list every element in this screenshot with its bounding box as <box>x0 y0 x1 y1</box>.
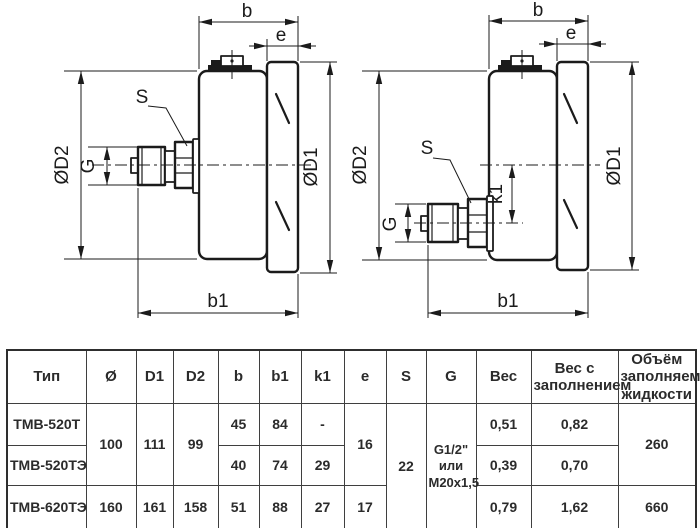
header-s: S <box>386 350 426 403</box>
cell-b: 45 <box>218 403 259 445</box>
header-volume: Объём заполняемой жидкости <box>618 350 696 403</box>
header-type: Тип <box>7 350 86 403</box>
cell-weight-filled: 0,70 <box>531 445 618 485</box>
spec-sheet: b e ØD2 G S ØD1 b1 <box>0 0 700 528</box>
dim-label-g-left: G <box>78 159 99 174</box>
cell-diameter: 160 <box>86 485 136 528</box>
cell-volume-merged: 260 <box>618 403 696 485</box>
cell-weight: 0,79 <box>476 485 531 528</box>
cell-e: 17 <box>344 485 386 528</box>
mounting-bracket-tab <box>211 60 221 66</box>
table-row: ТМВ-620ТЭ 160 161 158 51 88 27 17 0,79 1… <box>7 485 696 528</box>
dim-label-e-left: e <box>276 25 287 46</box>
leader-line <box>148 106 187 146</box>
header-d2: D2 <box>173 350 218 403</box>
cell-b: 51 <box>218 485 259 528</box>
cell-s-merged: 22 <box>386 403 426 528</box>
cell-g-merged: G1/2" или M20x1,5 <box>426 403 476 528</box>
header-weight-filled: Вес с заполнением <box>531 350 618 403</box>
technical-drawings: b e ØD2 G S ØD1 b1 <box>0 0 700 345</box>
table-header-row: Тип Ø D1 D2 b b1 k1 e S G Вес Вес с запо… <box>7 350 696 403</box>
cell-weight: 0,39 <box>476 445 531 485</box>
spec-table: Тип Ø D1 D2 b b1 k1 e S G Вес Вес с запо… <box>6 349 697 528</box>
cell-k1: 27 <box>301 485 344 528</box>
header-e: e <box>344 350 386 403</box>
cell-type: ТМВ-520ТЭ <box>7 445 86 485</box>
dim-label-b1-right: b1 <box>497 291 518 312</box>
dim-label-d2-left: ØD2 <box>52 145 73 184</box>
cell-b: 40 <box>218 445 259 485</box>
leader-line <box>433 158 471 203</box>
cell-d2: 158 <box>173 485 218 528</box>
cell-weight: 0,51 <box>476 403 531 445</box>
cell-b1: 74 <box>259 445 301 485</box>
cell-k1: 29 <box>301 445 344 485</box>
cell-type: ТМВ-520Т <box>7 403 86 445</box>
connection-washer <box>458 208 468 239</box>
gauge-case <box>489 71 557 260</box>
cell-b1: 84 <box>259 403 301 445</box>
dim-label-s-left: S <box>136 87 149 108</box>
dim-label-k1-right: k1 <box>486 184 507 204</box>
dim-label-s-right: S <box>421 138 434 159</box>
header-b: b <box>218 350 259 403</box>
cell-e-merged: 16 <box>344 403 386 485</box>
front-bezel <box>267 62 298 272</box>
cell-k1: - <box>301 403 344 445</box>
header-diameter: Ø <box>86 350 136 403</box>
cell-d1: 161 <box>136 485 173 528</box>
cell-weight-filled: 1,62 <box>531 485 618 528</box>
dim-label-b-left: b <box>242 1 253 22</box>
cell-b1: 88 <box>259 485 301 528</box>
cell-d1-merged: 111 <box>136 403 173 485</box>
connection-flange <box>193 139 199 193</box>
dim-label-b-right: b <box>533 0 544 21</box>
cell-weight-filled: 0,82 <box>531 403 618 445</box>
dim-label-g-right: G <box>380 217 401 232</box>
table-row: ТМВ-520Т 100 111 99 45 84 - 16 22 G1/2" … <box>7 403 696 445</box>
dim-label-d2-right: ØD2 <box>350 145 371 184</box>
left-drawing: b e ØD2 G S ØD1 b1 <box>52 1 337 318</box>
connection-washer <box>165 151 175 182</box>
front-bezel <box>557 62 588 270</box>
cell-diameter-merged: 100 <box>86 403 136 485</box>
dim-label-d1-right: ØD1 <box>604 146 625 185</box>
dim-label-d1-left: ØD1 <box>301 147 322 186</box>
cell-volume: 660 <box>618 485 696 528</box>
dim-label-e-right: e <box>566 23 577 44</box>
header-g: G <box>426 350 476 403</box>
header-weight: Вес <box>476 350 531 403</box>
dim-label-b1-left: b1 <box>207 291 228 312</box>
cell-d2-merged: 99 <box>173 403 218 485</box>
header-k1: k1 <box>301 350 344 403</box>
cell-type: ТМВ-620ТЭ <box>7 485 86 528</box>
header-b1: b1 <box>259 350 301 403</box>
mounting-bracket-tab <box>501 60 511 66</box>
header-d1: D1 <box>136 350 173 403</box>
right-drawing: b e ØD2 G S k1 ØD1 b1 <box>350 0 639 318</box>
